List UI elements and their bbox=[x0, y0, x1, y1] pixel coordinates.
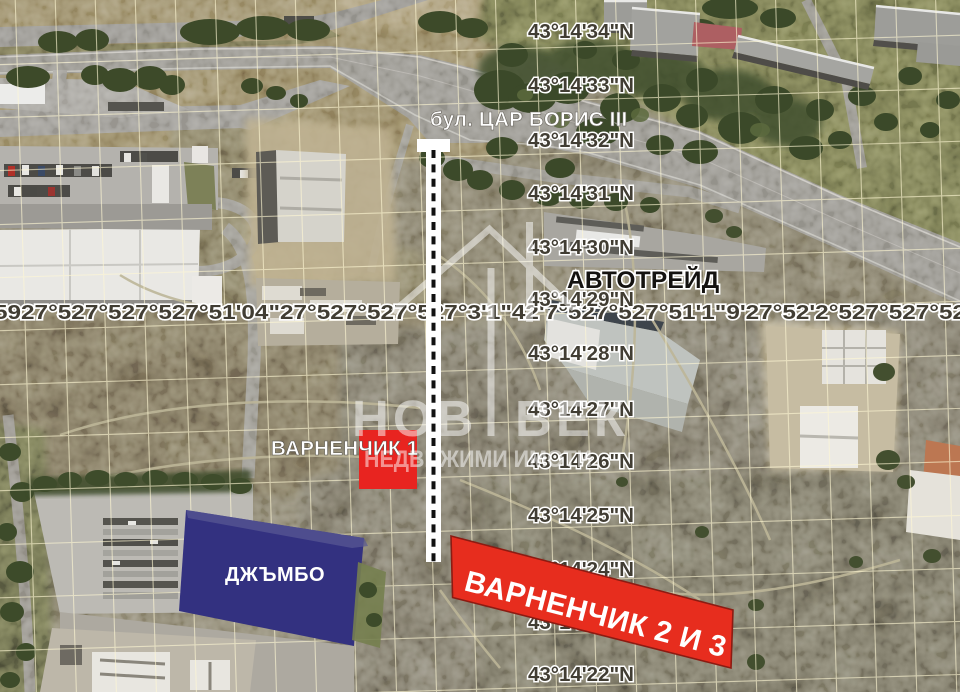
svg-text:43°14'32"N: 43°14'32"N bbox=[528, 129, 634, 152]
svg-text:43°14'33"N: 43°14'33"N bbox=[528, 74, 634, 97]
svg-text:ВЕК: ВЕК bbox=[515, 390, 629, 447]
svg-text:АВТОТРЕЙД: АВТОТРЕЙД bbox=[567, 266, 720, 294]
svg-text:5927°527°527°527°51'04"27°527°: 5927°527°527°527°51'04"27°527°527°527°3'… bbox=[0, 301, 960, 324]
svg-text:43°14'30"N: 43°14'30"N bbox=[528, 236, 634, 259]
svg-text:43°14'34"N: 43°14'34"N bbox=[528, 20, 634, 43]
svg-text:43°14'22"N: 43°14'22"N bbox=[528, 663, 634, 686]
svg-text:ДЖЪМБО: ДЖЪМБО bbox=[225, 564, 325, 586]
svg-text:43°14'31"N: 43°14'31"N bbox=[528, 182, 634, 205]
svg-text:43°14'28"N: 43°14'28"N bbox=[528, 342, 634, 365]
svg-text:НЕДВИЖИМИ ИМОТИ: НЕДВИЖИМИ ИМОТИ bbox=[364, 446, 592, 473]
svg-text:НОВ: НОВ bbox=[352, 390, 477, 447]
svg-text:43°14'25"N: 43°14'25"N bbox=[528, 504, 634, 527]
svg-text:бул. ЦАР БОРИС III: бул. ЦАР БОРИС III bbox=[430, 108, 627, 131]
